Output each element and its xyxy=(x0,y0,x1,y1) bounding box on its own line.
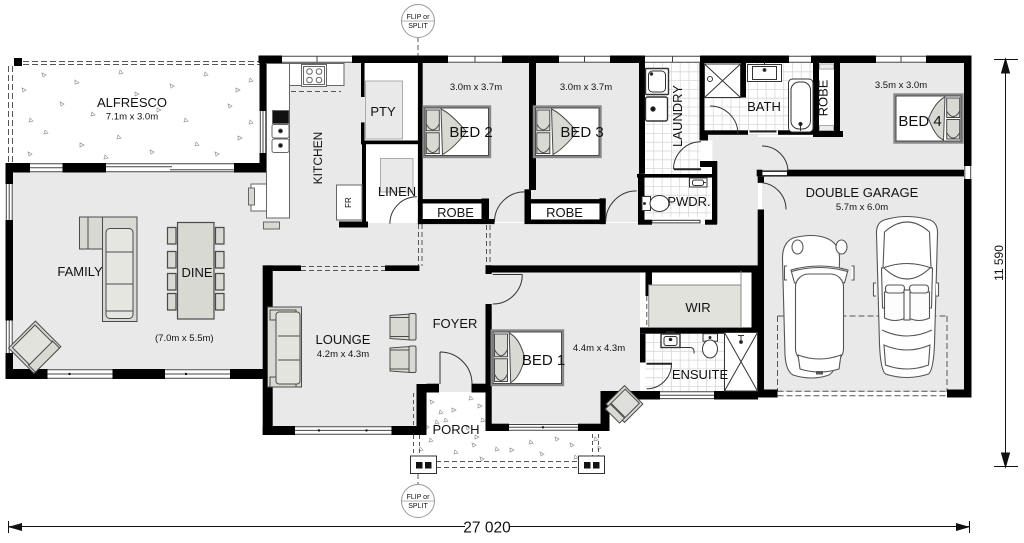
svg-text:ROBE: ROBE xyxy=(546,205,583,220)
svg-text:FR: FR xyxy=(344,197,353,208)
svg-text:BATH: BATH xyxy=(747,99,781,114)
svg-text:5.7m x 6.0m: 5.7m x 6.0m xyxy=(836,202,888,213)
svg-text:BED 4: BED 4 xyxy=(898,113,941,130)
svg-text:27 020: 27 020 xyxy=(463,520,511,537)
svg-text:KITCHEN: KITCHEN xyxy=(311,132,325,185)
svg-text:PTY: PTY xyxy=(370,104,396,119)
svg-text:3.5m x 3.0m: 3.5m x 3.0m xyxy=(875,80,927,91)
svg-text:(7.0m x 5.5m): (7.0m x 5.5m) xyxy=(155,333,214,344)
svg-text:ROBE: ROBE xyxy=(437,205,474,220)
svg-text:LAUNDRY: LAUNDRY xyxy=(670,85,685,147)
svg-text:3.0m x 3.7m: 3.0m x 3.7m xyxy=(450,82,502,93)
svg-text:DOUBLE GARAGE: DOUBLE GARAGE xyxy=(806,185,919,200)
svg-text:BED 2: BED 2 xyxy=(449,124,492,141)
svg-text:FOYER: FOYER xyxy=(433,316,478,331)
svg-text:BED 3: BED 3 xyxy=(560,124,603,141)
svg-text:7.1m x 3.0m: 7.1m x 3.0m xyxy=(106,112,158,123)
svg-text:WIR: WIR xyxy=(685,300,710,315)
svg-text:FLIP or: FLIP or xyxy=(407,14,430,21)
svg-text:3.0m x 3.7m: 3.0m x 3.7m xyxy=(560,82,612,93)
svg-text:SPLIT: SPLIT xyxy=(408,23,428,30)
svg-text:11 590: 11 590 xyxy=(992,245,1006,281)
svg-text:ENSUITE: ENSUITE xyxy=(672,367,729,382)
svg-text:ALFRESCO: ALFRESCO xyxy=(97,95,167,110)
svg-text:SPLIT: SPLIT xyxy=(408,503,428,510)
svg-text:LOUNGE: LOUNGE xyxy=(316,332,371,347)
svg-text:PWDR.: PWDR. xyxy=(667,194,710,209)
svg-text:LINEN: LINEN xyxy=(378,184,416,199)
svg-text:4.2m x 4.3m: 4.2m x 4.3m xyxy=(317,349,369,360)
svg-text:FAMILY: FAMILY xyxy=(57,264,103,279)
svg-text:FLIP or: FLIP or xyxy=(407,494,430,501)
svg-text:BED 1: BED 1 xyxy=(522,352,565,369)
svg-text:DINE: DINE xyxy=(181,265,212,280)
svg-text:4.4m x 4.3m: 4.4m x 4.3m xyxy=(573,343,625,354)
svg-text:ROBE: ROBE xyxy=(816,79,831,116)
svg-text:PORCH: PORCH xyxy=(433,422,480,437)
